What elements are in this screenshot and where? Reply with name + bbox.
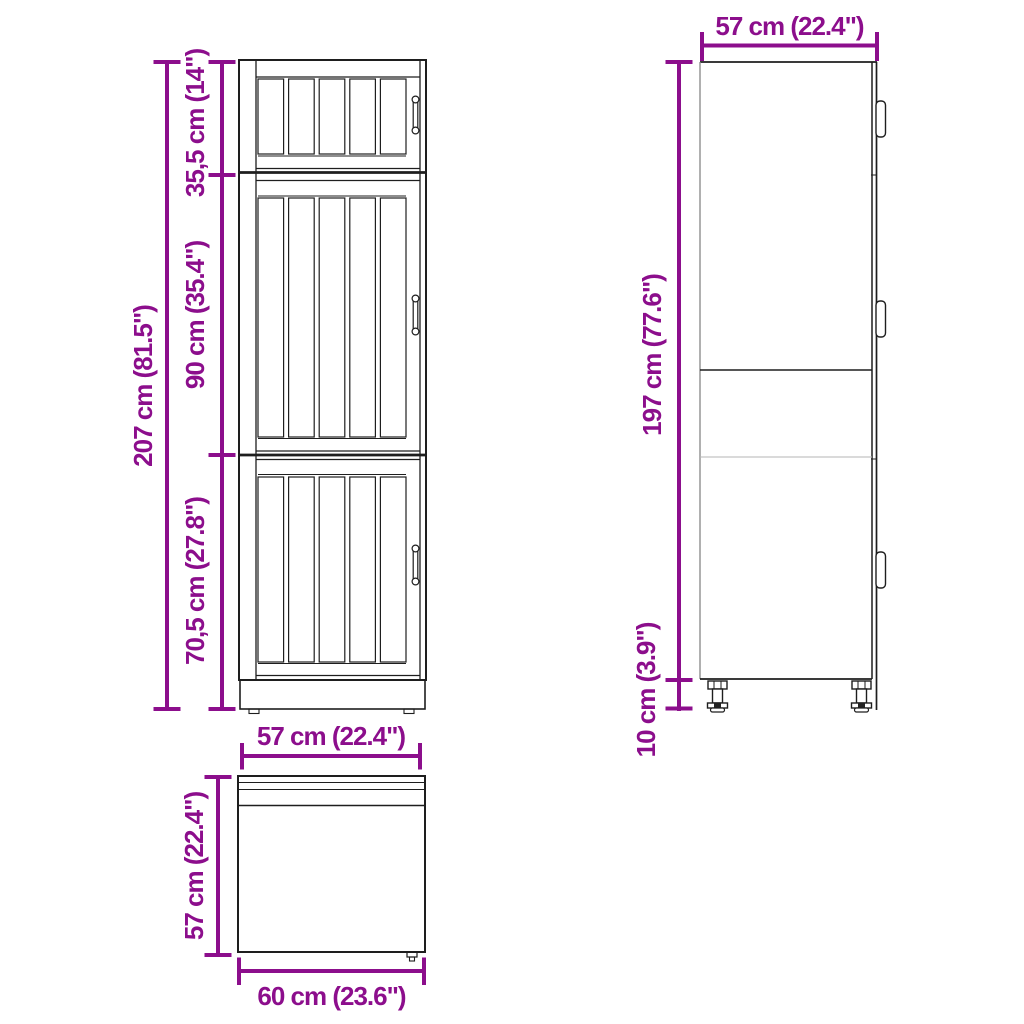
side-handle-icon bbox=[876, 101, 886, 137]
top-view-drawing bbox=[238, 776, 425, 961]
side-handle-icon bbox=[876, 552, 886, 588]
diagram-canvas: 207 cm (81.5") 35,5 cm (14") 90 cm (35.4… bbox=[0, 0, 1024, 1024]
front-view-dimensions: 207 cm (81.5") 35,5 cm (14") 90 cm (35.4… bbox=[128, 49, 234, 709]
dim-label-depth: 57 cm (22.4") bbox=[715, 11, 864, 41]
door-handle-icon bbox=[412, 96, 419, 134]
side-view-drawing bbox=[700, 62, 886, 712]
dim-label-middle-section: 90 cm (35.4") bbox=[180, 241, 210, 390]
front-door-bottom bbox=[256, 460, 420, 676]
dim-label-top-depth: 57 cm (22.4") bbox=[179, 792, 209, 941]
door-handle-icon bbox=[412, 545, 419, 585]
front-plinth bbox=[240, 680, 425, 714]
dim-label-top-section: 35,5 cm (14") bbox=[180, 49, 210, 198]
door-handle-icon bbox=[412, 295, 419, 335]
top-view-outline bbox=[238, 776, 425, 952]
dim-label-body-height: 197 cm (77.6") bbox=[637, 274, 667, 436]
front-cabinet-outline bbox=[239, 60, 426, 680]
top-view-dimensions: 57 cm (22.4") 57 cm (22.4") 60 cm (23.6"… bbox=[179, 721, 424, 1011]
dim-label-top-width: 57 cm (22.4") bbox=[257, 721, 406, 751]
side-handle-icon bbox=[876, 301, 886, 337]
front-door-middle bbox=[256, 181, 420, 452]
dimension-diagram: 207 cm (81.5") 35,5 cm (14") 90 cm (35.4… bbox=[0, 0, 1024, 1024]
dim-label-bottom-section: 70,5 cm (27.8") bbox=[180, 497, 210, 665]
dim-label-leg-height: 10 cm (3.9") bbox=[631, 622, 661, 757]
front-view-drawing bbox=[239, 60, 426, 714]
dim-label-bottom-width: 60 cm (23.6") bbox=[257, 981, 406, 1011]
side-leg-back bbox=[852, 681, 872, 712]
side-view-dimensions: 57 cm (22.4") 197 cm (77.6") 10 cm (3.9"… bbox=[631, 11, 877, 757]
side-leg-front bbox=[708, 681, 728, 712]
front-door-top bbox=[256, 77, 420, 169]
top-view-foot bbox=[407, 952, 417, 961]
dim-label-total-height: 207 cm (81.5") bbox=[128, 305, 158, 467]
